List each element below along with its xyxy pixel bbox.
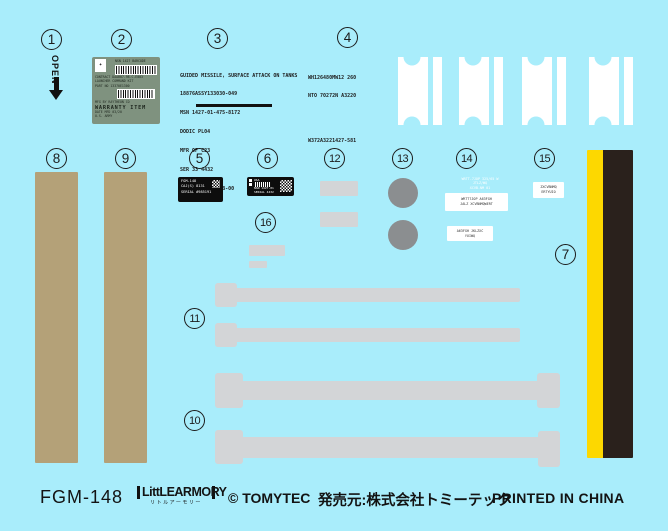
- marker-4: 4: [337, 27, 358, 48]
- strap-buckle: [215, 430, 243, 464]
- strap-buckle: [538, 431, 560, 467]
- spec-label-decal-14c: A63FGH JKLZXC YUIWQ: [447, 226, 493, 241]
- warranty-mfg-line: MFG BY RAYTHEON CO: [95, 100, 157, 104]
- strap-decal-10b: [240, 437, 540, 458]
- marker-10: 10: [184, 410, 205, 431]
- logo-main-text: LittLEARMORY: [137, 486, 215, 499]
- spec-line: ERTYUIO: [533, 190, 564, 195]
- barcode-label-line: SERIAL 4432: [254, 191, 278, 195]
- stencil-line: WH126480MW12 260: [308, 75, 356, 81]
- cage-label-line: SERIAL #985191: [181, 190, 220, 195]
- tan-stripe-decal-9: [104, 172, 147, 463]
- marker-11: 11: [184, 308, 205, 329]
- army-emblem-icon: ✦: [95, 59, 106, 72]
- tube-cap-decal: [589, 57, 633, 125]
- copyright-text: © TOMYTEC: [228, 490, 310, 506]
- spec-white-text-decal: WRTT-7JOP 325/65 W JTLZ/WQ XCVB-NM 01: [446, 177, 514, 190]
- label-marks: [249, 179, 252, 195]
- grey-rect-decal-16b: [249, 261, 267, 268]
- spec-line: XCVB-NM 01: [446, 186, 514, 190]
- marker-2: 2: [111, 29, 132, 50]
- grey-rect-decal-16a: [249, 245, 285, 256]
- data-plate-line: DODIC PL04: [180, 129, 297, 135]
- warranty-label-header: NSN 1427 BARCODE: [115, 59, 157, 63]
- spec-line: YUIWQ: [447, 234, 493, 239]
- marker-13: 13: [392, 148, 413, 169]
- data-plate-line: SER 33 4432: [180, 167, 297, 173]
- grey-rect-decal-12a: [320, 181, 358, 196]
- strap-decal-11a: [233, 288, 520, 302]
- strap-decal-11b: [233, 328, 520, 342]
- qr-code-icon: [212, 180, 220, 188]
- black-stripe-decal: [603, 150, 633, 458]
- littlearmory-logo: LittLEARMORY リトルアーモリー: [137, 486, 215, 506]
- marker-3: 3: [207, 28, 228, 49]
- stencil-text: WH126480MW12 260 NTO 70272N A3220 W372A3…: [308, 62, 356, 157]
- strap-buckle: [537, 373, 560, 408]
- data-plate-line: MFR OF C23: [180, 148, 297, 154]
- marker-16: 16: [255, 212, 276, 233]
- warranty-label-decal: ✦ NSN 1427 BARCODE CONTRACT DAAB07-98-C-…: [92, 57, 160, 124]
- barcode-label-decal: USA NSN 1427-01 SERIAL 4432: [247, 177, 294, 196]
- data-plate-line: 18876ASSY133030-049: [180, 91, 297, 97]
- publisher-text: 発売元:株式会社トミーテック: [318, 489, 511, 510]
- tube-cap-decal: [522, 57, 566, 125]
- cage-label-decal: FGM-148 CAJ(S) 8131 SERIAL #985191: [178, 177, 223, 202]
- tube-cap-decal: [398, 57, 442, 125]
- qr-code-icon: [280, 180, 292, 192]
- yellow-stripe-decal: [587, 150, 603, 458]
- stencil-line: W372A3221427-581: [308, 138, 356, 144]
- warranty-us-line: U.S. ARMY: [95, 114, 157, 118]
- spec-label-decal-15: ZXCVBNMQ ERTYUIO: [533, 182, 564, 198]
- marker-7: 7: [555, 244, 576, 265]
- spec-line: JALZ XCVBNMQWERT: [445, 202, 508, 207]
- marker-9: 9: [115, 148, 136, 169]
- stencil-line: NTO 70272N A3220: [308, 93, 356, 99]
- marker-14: 14: [456, 148, 477, 169]
- logo-sub-text: リトルアーモリー: [137, 500, 215, 506]
- decal-sheet: 1 2 3 4 5 6 7 8 9 10 11 12 13 14 15 16 O…: [0, 0, 668, 531]
- grey-dot-decal-13a: [388, 178, 418, 208]
- product-code: FGM-148: [40, 487, 123, 508]
- marker-15: 15: [534, 148, 555, 169]
- warranty-part-line: PART NO 13370E1300: [95, 84, 157, 88]
- marker-8: 8: [46, 148, 67, 169]
- data-plate-line: GUIDED MISSILE, SURFACE ATTACK ON TANKS: [180, 73, 297, 79]
- lot-underline: [196, 104, 272, 107]
- strap-decal-10a: [240, 381, 540, 400]
- barcode-icon: [115, 65, 157, 75]
- spec-label-decal-14b: WRTT7JOP A63FGH JALZ XCVBNMQWERT: [445, 193, 508, 211]
- tan-stripe-decal-8: [35, 172, 78, 463]
- printed-in-china-text: PRINTED IN CHINA: [492, 490, 624, 506]
- strap-buckle: [215, 373, 243, 408]
- marker-1: 1: [41, 29, 62, 50]
- grey-rect-decal-12b: [320, 212, 358, 227]
- tube-cap-decal: [459, 57, 503, 125]
- grey-dot-decal-13b: [388, 220, 418, 250]
- data-plate-line: MSN 1427-01-475-8172: [180, 110, 297, 116]
- down-arrow-icon: [54, 77, 59, 90]
- down-arrow-head-icon: [49, 90, 63, 100]
- barcode-icon: [117, 89, 155, 99]
